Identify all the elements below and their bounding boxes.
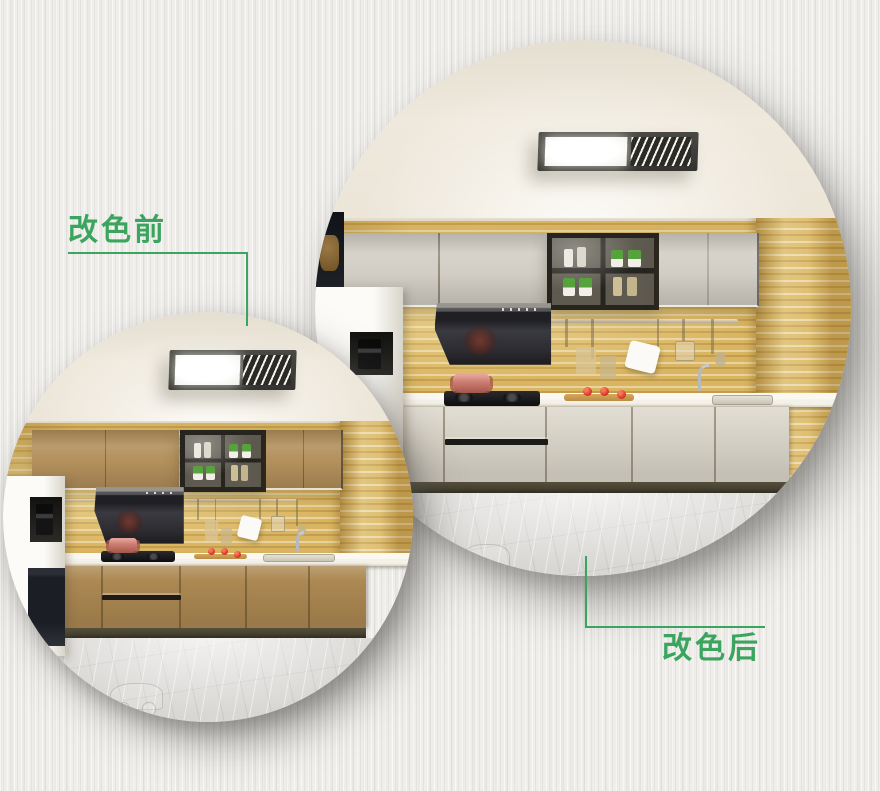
bottle [194,443,201,458]
copper-pot [109,538,137,553]
ceiling-light [168,350,296,390]
potted-plant [242,444,251,458]
light-vent-grille [630,137,692,166]
glass-jar [613,277,622,296]
before-label: 改色前 [68,216,167,246]
glass-display-cabinet [547,233,660,310]
potted-plant [563,278,575,295]
light-panel [545,137,627,166]
potted-plant [628,250,640,267]
hanging-cup [271,516,285,531]
toe-kick [56,628,366,638]
potted-plant [206,466,215,480]
glass-jar [627,277,636,296]
hood-reflection [460,327,500,355]
hanging-cup [675,341,695,360]
drawer-handle-groove [445,439,548,445]
potted-plant [611,250,623,267]
tomato [234,551,241,558]
hanging-board [237,515,262,541]
light-vent-grille [242,355,291,384]
potted-plant [229,444,238,458]
hanging-jar [576,347,596,374]
coffee-machine [36,504,54,536]
marble-floor [3,638,413,722]
upper-cabinet-right [659,233,759,307]
glass-display-cabinet [180,430,266,492]
glass-jar [241,465,248,480]
hood-reflection [114,509,144,535]
sink [712,395,774,405]
hood-controls [146,492,173,495]
ceiling [315,40,851,218]
faucet [690,364,709,394]
tomato [583,387,592,396]
window-strip [315,212,344,290]
bottle [577,247,586,268]
faucet [290,531,305,554]
toe-kick [401,482,790,493]
basket [320,235,339,271]
before-connector-line [246,252,248,326]
gas-cooktop [444,391,540,406]
ceiling-light [537,132,698,171]
sink [263,554,335,562]
before-connector-line [68,252,248,254]
after-label: 改色后 [662,634,761,664]
hanging-spoon [715,352,726,367]
built-in-oven [28,568,66,646]
potted-plant [579,278,591,295]
after-connector-line [585,556,587,628]
drawer-handle-groove [102,595,181,600]
hanging-jar [221,528,232,545]
after-connector-line [585,626,765,628]
hanging-jar [600,356,616,379]
potted-plant [193,466,202,480]
bottle [564,249,573,268]
hanging-jar [205,520,219,541]
floor-sketch [462,544,510,573]
hood-controls [502,308,537,311]
floor-sketch [110,683,163,710]
before-kitchen-scene [3,312,413,722]
copper-pot [453,374,489,393]
range-hood [94,487,183,544]
upper-cabinet-right [266,430,343,490]
tile-pillar [340,419,413,558]
recolor-promo-image: 改色前 改色后 [0,0,880,791]
glass-jar [231,465,238,480]
light-panel [174,355,240,384]
before-photo-circle [3,312,413,722]
range-hood [435,303,552,365]
bottle [204,442,211,458]
appliance-shelf [30,497,63,542]
